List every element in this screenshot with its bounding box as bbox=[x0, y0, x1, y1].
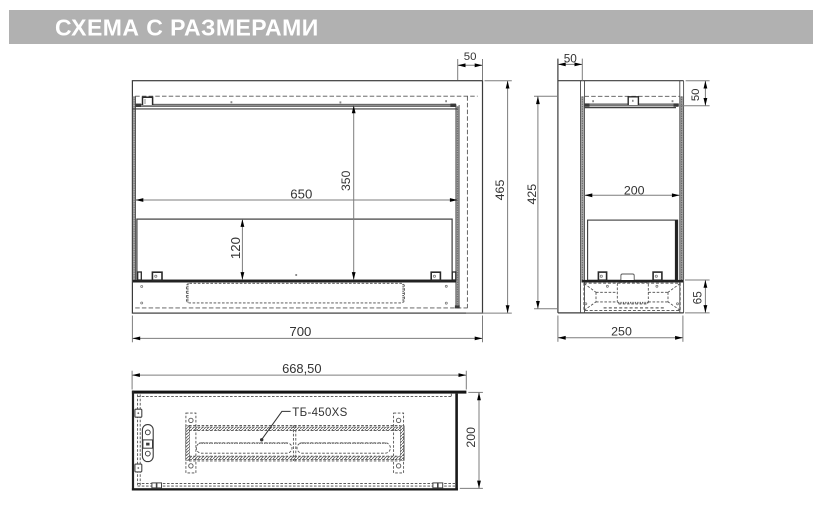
svg-text:650: 650 bbox=[290, 186, 312, 201]
svg-text:120: 120 bbox=[228, 237, 243, 259]
svg-text:200: 200 bbox=[624, 183, 645, 197]
svg-text:700: 700 bbox=[289, 324, 311, 339]
svg-text:465: 465 bbox=[493, 180, 507, 201]
svg-text:СХЕМА С РАЗМЕРАМИ: СХЕМА С РАЗМЕРАМИ bbox=[55, 15, 319, 41]
svg-text:50: 50 bbox=[564, 51, 578, 65]
svg-text:200: 200 bbox=[464, 427, 478, 448]
svg-text:425: 425 bbox=[525, 184, 539, 205]
svg-text:65: 65 bbox=[691, 291, 705, 305]
svg-text:50: 50 bbox=[464, 51, 477, 63]
svg-text:250: 250 bbox=[611, 324, 632, 338]
svg-text:50: 50 bbox=[690, 89, 702, 102]
svg-text:ТБ-450XS: ТБ-450XS bbox=[292, 407, 347, 419]
svg-text:350: 350 bbox=[339, 170, 353, 191]
svg-text:668,50: 668,50 bbox=[282, 361, 321, 376]
